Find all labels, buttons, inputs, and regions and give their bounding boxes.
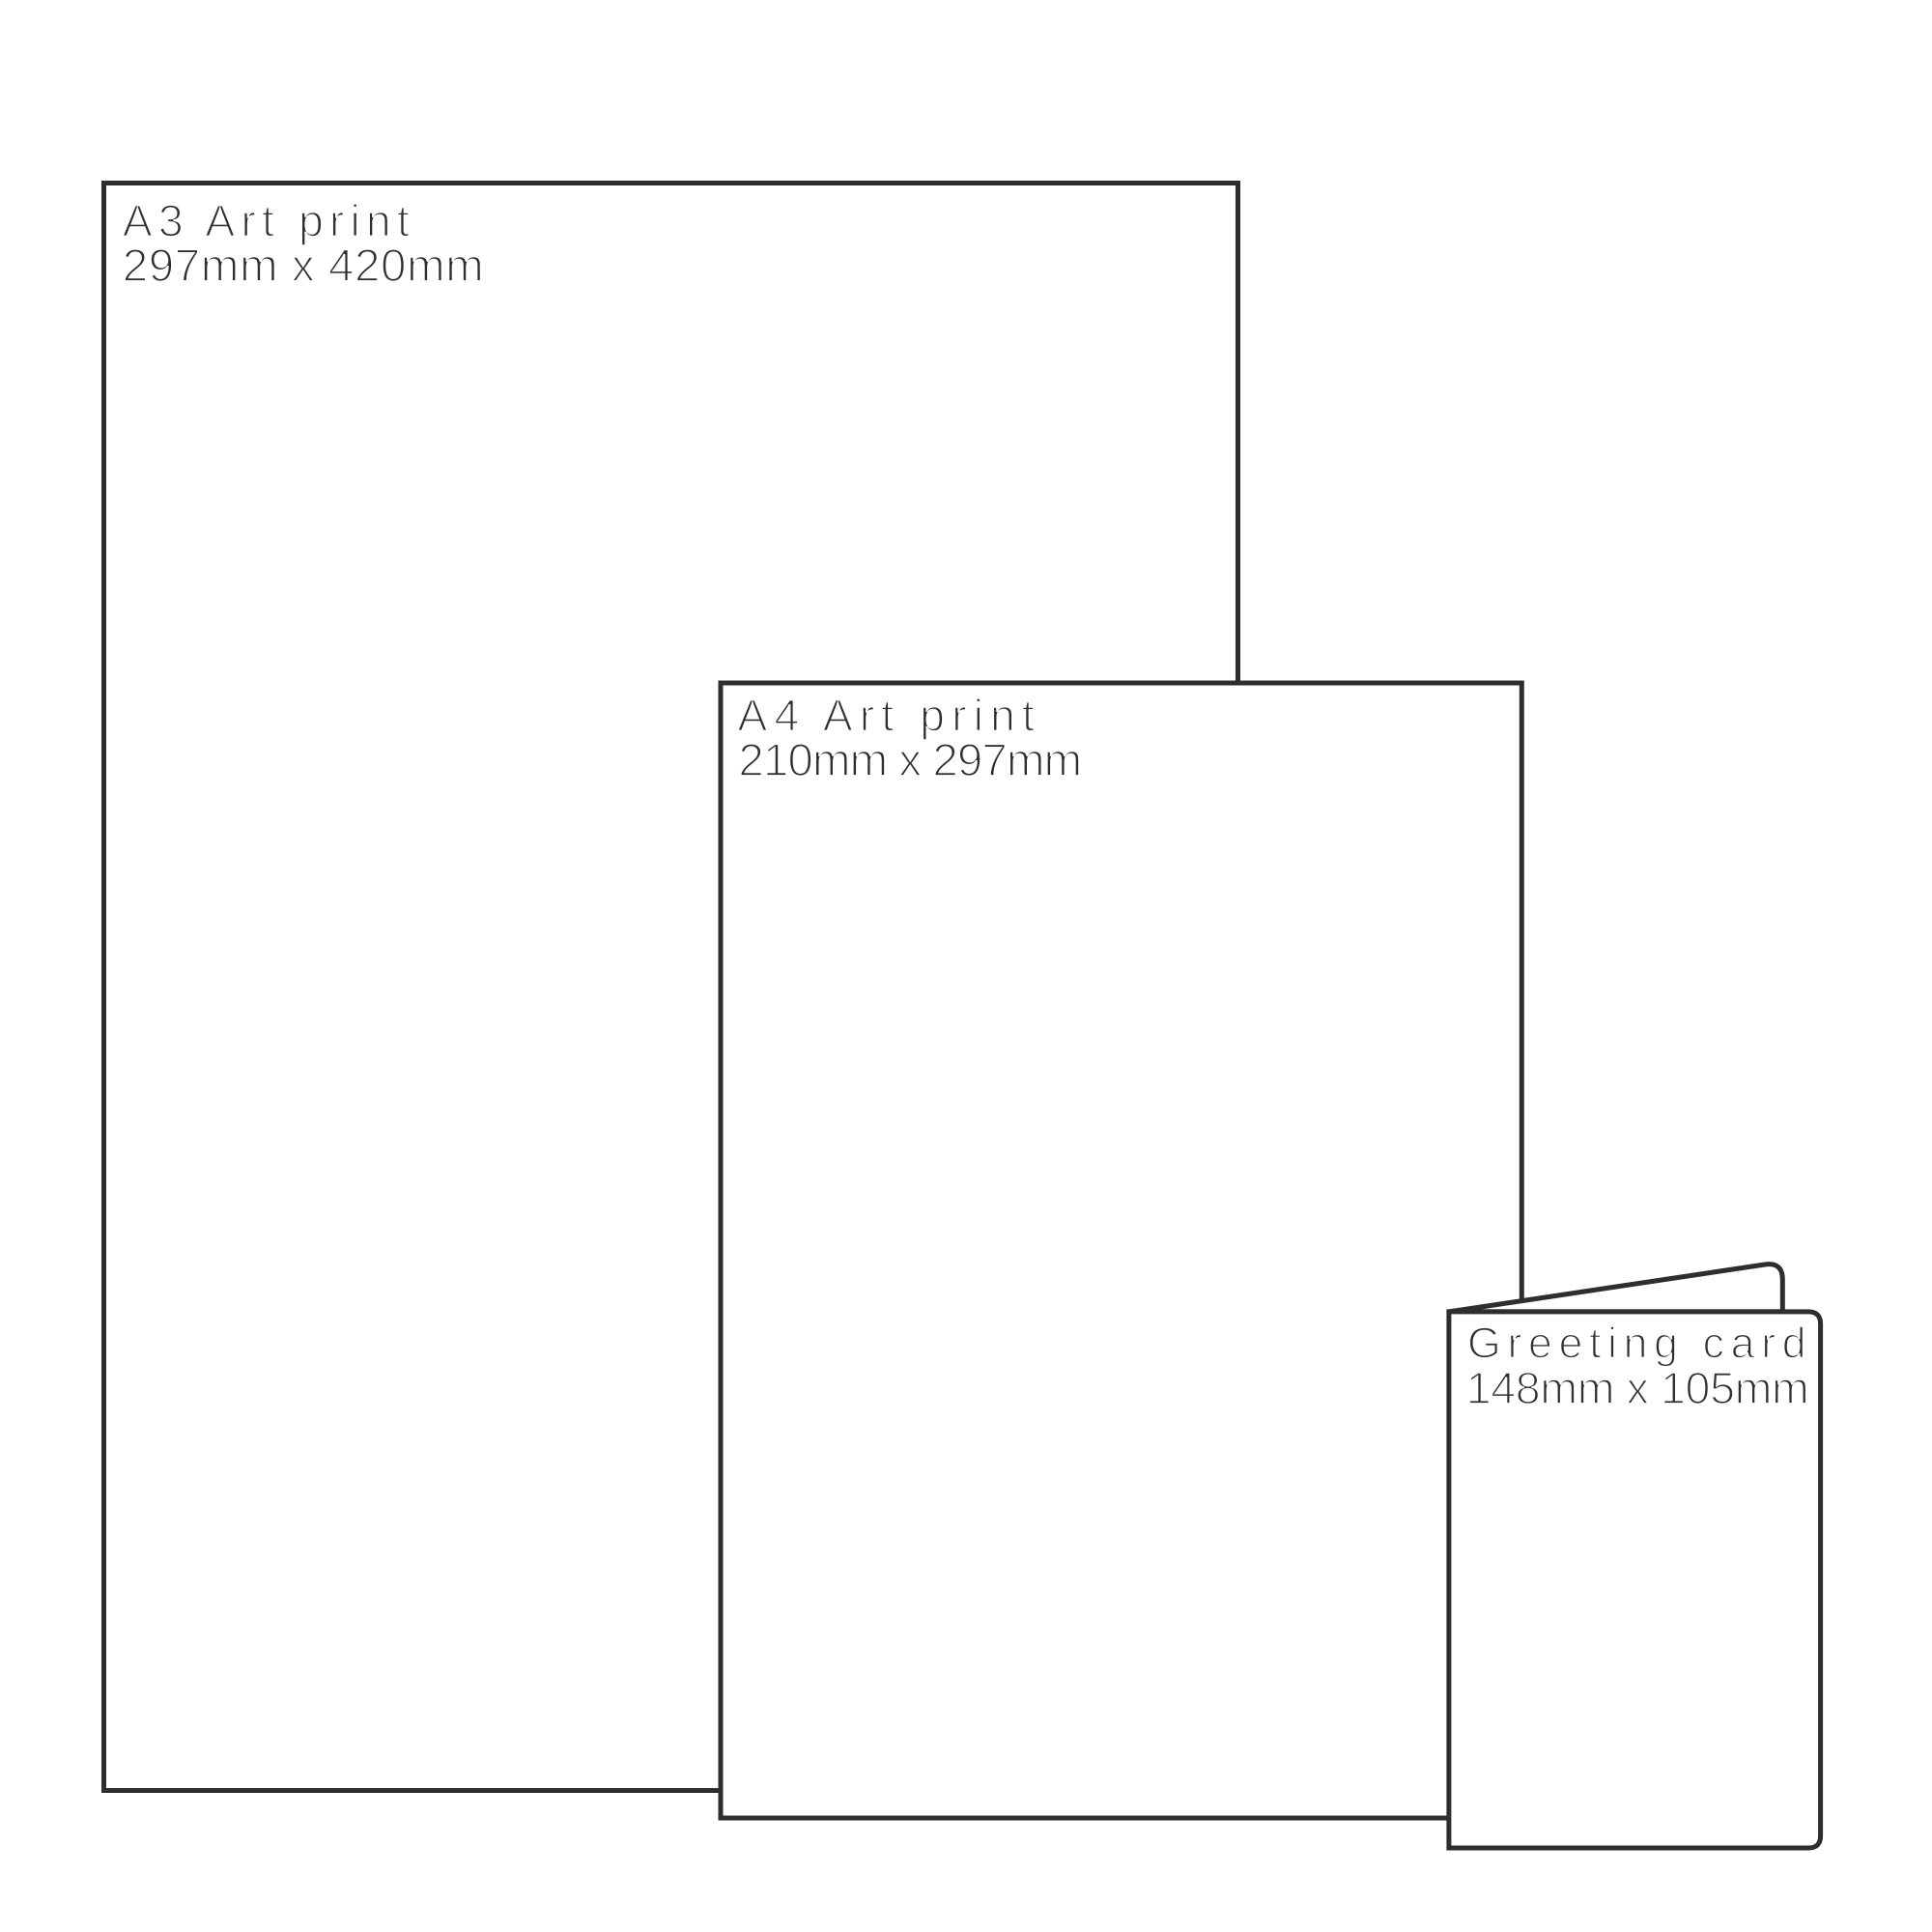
svg-text:210mm x 297mm: 210mm x 297mm bbox=[738, 735, 1082, 786]
svg-text:148mm x 105mm: 148mm x 105mm bbox=[1466, 1363, 1809, 1413]
svg-text:A3 Art print: A3 Art print bbox=[123, 195, 410, 245]
svg-text:297mm x 420mm: 297mm x 420mm bbox=[123, 241, 484, 292]
svg-text:A4 Art print: A4 Art print bbox=[737, 691, 1034, 741]
